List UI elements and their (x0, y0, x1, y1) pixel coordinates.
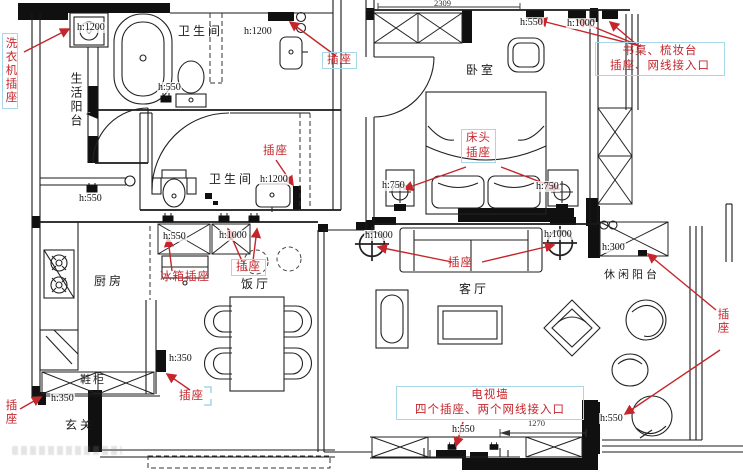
outlet-label-desk-line1: 书桌、梳妆台 (600, 44, 720, 59)
wardrobe (374, 13, 462, 43)
watermark (12, 446, 122, 455)
balcony-chair-3 (632, 396, 672, 438)
outlet-label-entry-left: 插座 (4, 399, 16, 426)
bracket-marks (204, 387, 211, 405)
outlet-label-balcony: 插座 (716, 308, 728, 335)
height-sofa-right: h:1000 (543, 229, 573, 240)
bedroom-side-cabinet (598, 108, 632, 204)
stool (508, 38, 544, 72)
toilet-mid (152, 170, 196, 207)
height-balcony-floor: h:550 (599, 413, 624, 424)
outlet-label-tv-wall: 电视墙 四个插座、两个网线接入口 (396, 386, 584, 420)
height-sink-top: h:1200 (243, 26, 273, 37)
height-bedroom-top-right: h:1000 (566, 18, 596, 29)
room-label-shoe-cabinet: 鞋柜 (80, 374, 106, 386)
height-entry: h:350 (168, 353, 193, 364)
outlet-label-bed-line2: 插座 (466, 146, 491, 161)
ceiling-light (277, 247, 301, 271)
tv-unit (416, 448, 520, 458)
side-cabinet (376, 290, 408, 348)
height-fridge: h:550 (162, 231, 187, 242)
outlet-label-bath-top: 插座 (322, 52, 357, 69)
room-label-entry: 玄关 (65, 419, 95, 432)
outlet-label-washer: 洗衣机插座 (2, 33, 18, 109)
height-sofa-left: h:1000 (364, 230, 394, 241)
outlet-label-bath-mid: 插座 (263, 145, 288, 158)
outlet-label-tv-line2: 四个插座、两个网线接入口 (401, 403, 579, 418)
coffee-table (438, 306, 502, 344)
outlet-label-dining: 插座 (231, 259, 266, 276)
outlet-label-fridge: 冰箱插座 (160, 271, 210, 284)
plumbing-fitting (297, 13, 306, 22)
outlet-label-bed: 床头 插座 (461, 129, 496, 163)
kitchen-corner-cabinet (40, 330, 78, 370)
sink-top (280, 37, 308, 69)
floor-plan: 生活阳台 卫生间 卫生间 卧室 厨房 饭厅 客厅 休闲阳台 玄关 鞋柜 h:12… (0, 0, 743, 472)
room-label-kitchen: 厨房 (94, 275, 124, 288)
room-label-leisure-balcony: 休闲阳台 (604, 269, 660, 281)
sink-mid (256, 184, 290, 212)
outlet-symbols (87, 12, 498, 449)
outlet-label-desk: 书桌、梳妆台 插座、网线接入口 (595, 42, 725, 76)
dimension-tv: 1270 (528, 419, 545, 428)
room-label-bedroom: 卧室 (466, 64, 496, 77)
dining-table (230, 297, 284, 391)
accent-chair (544, 300, 600, 356)
room-label-bath-top: 卫生间 (178, 25, 223, 38)
outlet-label-entry-hall: 插座 (179, 390, 204, 403)
height-balcony-cabinet: h:300 (601, 242, 626, 253)
outlet-label-bed-line1: 床头 (466, 131, 491, 146)
room-label-life-balcony: 生活阳台 (70, 72, 82, 128)
outlet-label-tv-line1: 电视墙 (401, 388, 579, 403)
doors (86, 57, 434, 190)
floor-drain (213, 201, 218, 205)
height-toilet-top: h:550 (157, 82, 182, 93)
stove (44, 250, 74, 298)
height-nightstand-left: h:750 (381, 180, 406, 191)
outlet-label-sofa: 插座 (448, 257, 473, 270)
outlet-label-desk-line2: 插座、网线接入口 (600, 59, 720, 74)
height-dining: h:1000 (218, 230, 248, 241)
balcony-chair-1 (626, 300, 666, 340)
dining-chairs (205, 306, 312, 379)
balcony-chair-2 (612, 354, 648, 386)
room-label-living: 客厅 (459, 283, 489, 296)
height-tv-wall: h:550 (451, 424, 476, 435)
height-bedroom-top-left: h:550 (519, 17, 544, 28)
height-counter: h:550 (78, 193, 103, 204)
dimension-top: 2309 (434, 0, 451, 8)
height-shoe: h:350 (50, 393, 75, 404)
room-label-dining: 饭厅 (241, 278, 271, 291)
height-bath-mid: h:1200 (259, 174, 289, 185)
room-label-bath-mid: 卫生间 (209, 173, 254, 186)
height-nightstand-right: h:750 (535, 181, 560, 192)
height-washer: h:1200 (76, 22, 106, 33)
floor-drain (205, 193, 212, 199)
